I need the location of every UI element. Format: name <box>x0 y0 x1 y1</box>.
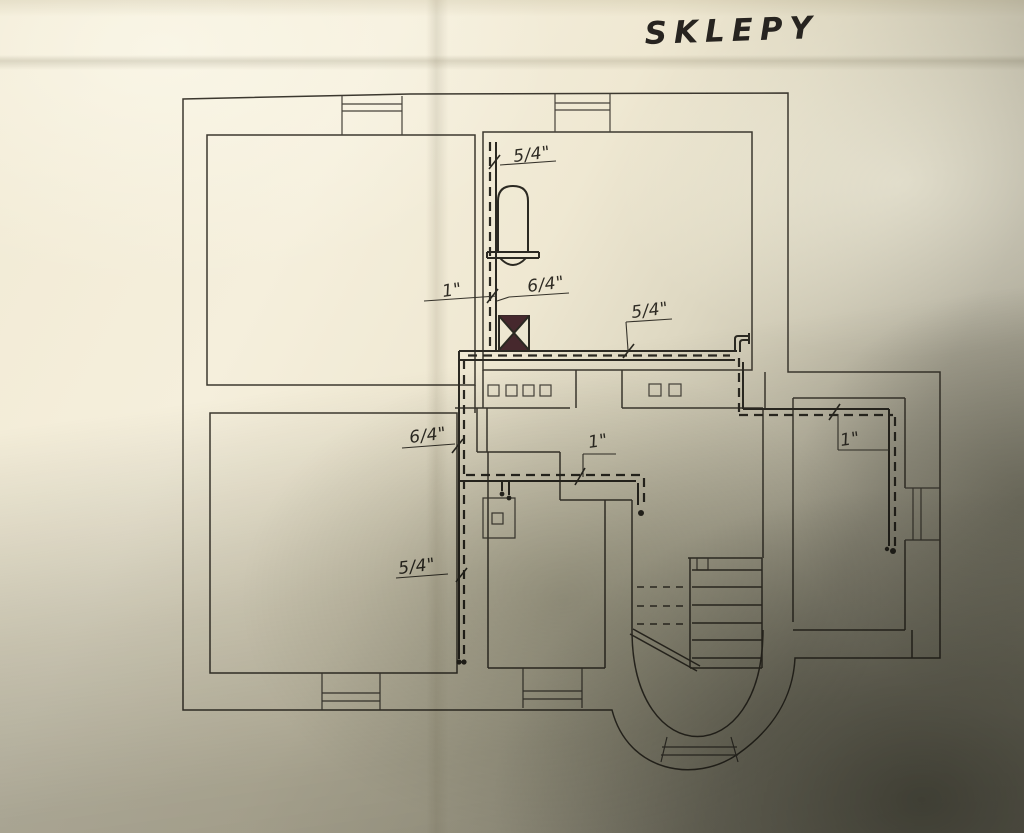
window-right-wing <box>905 488 940 540</box>
room-middle-bottom <box>477 452 632 668</box>
dimension-label: 1" <box>839 428 861 451</box>
dimension-label: 1" <box>441 279 463 302</box>
stair-newel <box>697 558 708 570</box>
corridor-walls <box>455 370 765 408</box>
drawing-title: SKLEPY <box>644 10 820 52</box>
pipes <box>456 142 896 665</box>
dimension-label: 1" <box>587 430 609 453</box>
staircase <box>630 558 762 671</box>
room-bottom-left <box>210 413 457 673</box>
walls <box>183 93 940 770</box>
chimney-flues <box>488 384 681 396</box>
valve-icon <box>499 316 529 350</box>
bay-window <box>661 737 738 762</box>
window-bottom-middle <box>523 668 582 708</box>
stair-projection-dashes <box>637 587 688 624</box>
dimension-label: 6/4" <box>408 424 447 448</box>
room-top-left <box>207 135 475 385</box>
window-top-right <box>555 94 610 132</box>
stair-treads <box>692 570 762 658</box>
pipe-middle-branch <box>466 475 644 508</box>
stair-enclosure <box>688 558 762 668</box>
scanned-floor-plan: 5/4" 1" 6/4" 5/4" 6/4" 1" 1" 5/4" SKLEPY <box>0 0 1024 833</box>
window-bottom-left <box>322 673 380 710</box>
dimension-leaders <box>396 155 889 582</box>
window-top-left <box>342 96 402 135</box>
pipe-riser-hook <box>735 333 749 352</box>
dimension-label: 5/4" <box>512 143 551 167</box>
floor-plan-svg: 5/4" 1" 6/4" 5/4" 6/4" 1" 1" 5/4" SKLEPY <box>0 0 1024 833</box>
wall-connectors <box>475 370 487 452</box>
boiler-tank <box>487 186 539 265</box>
pier-flue <box>492 513 503 524</box>
